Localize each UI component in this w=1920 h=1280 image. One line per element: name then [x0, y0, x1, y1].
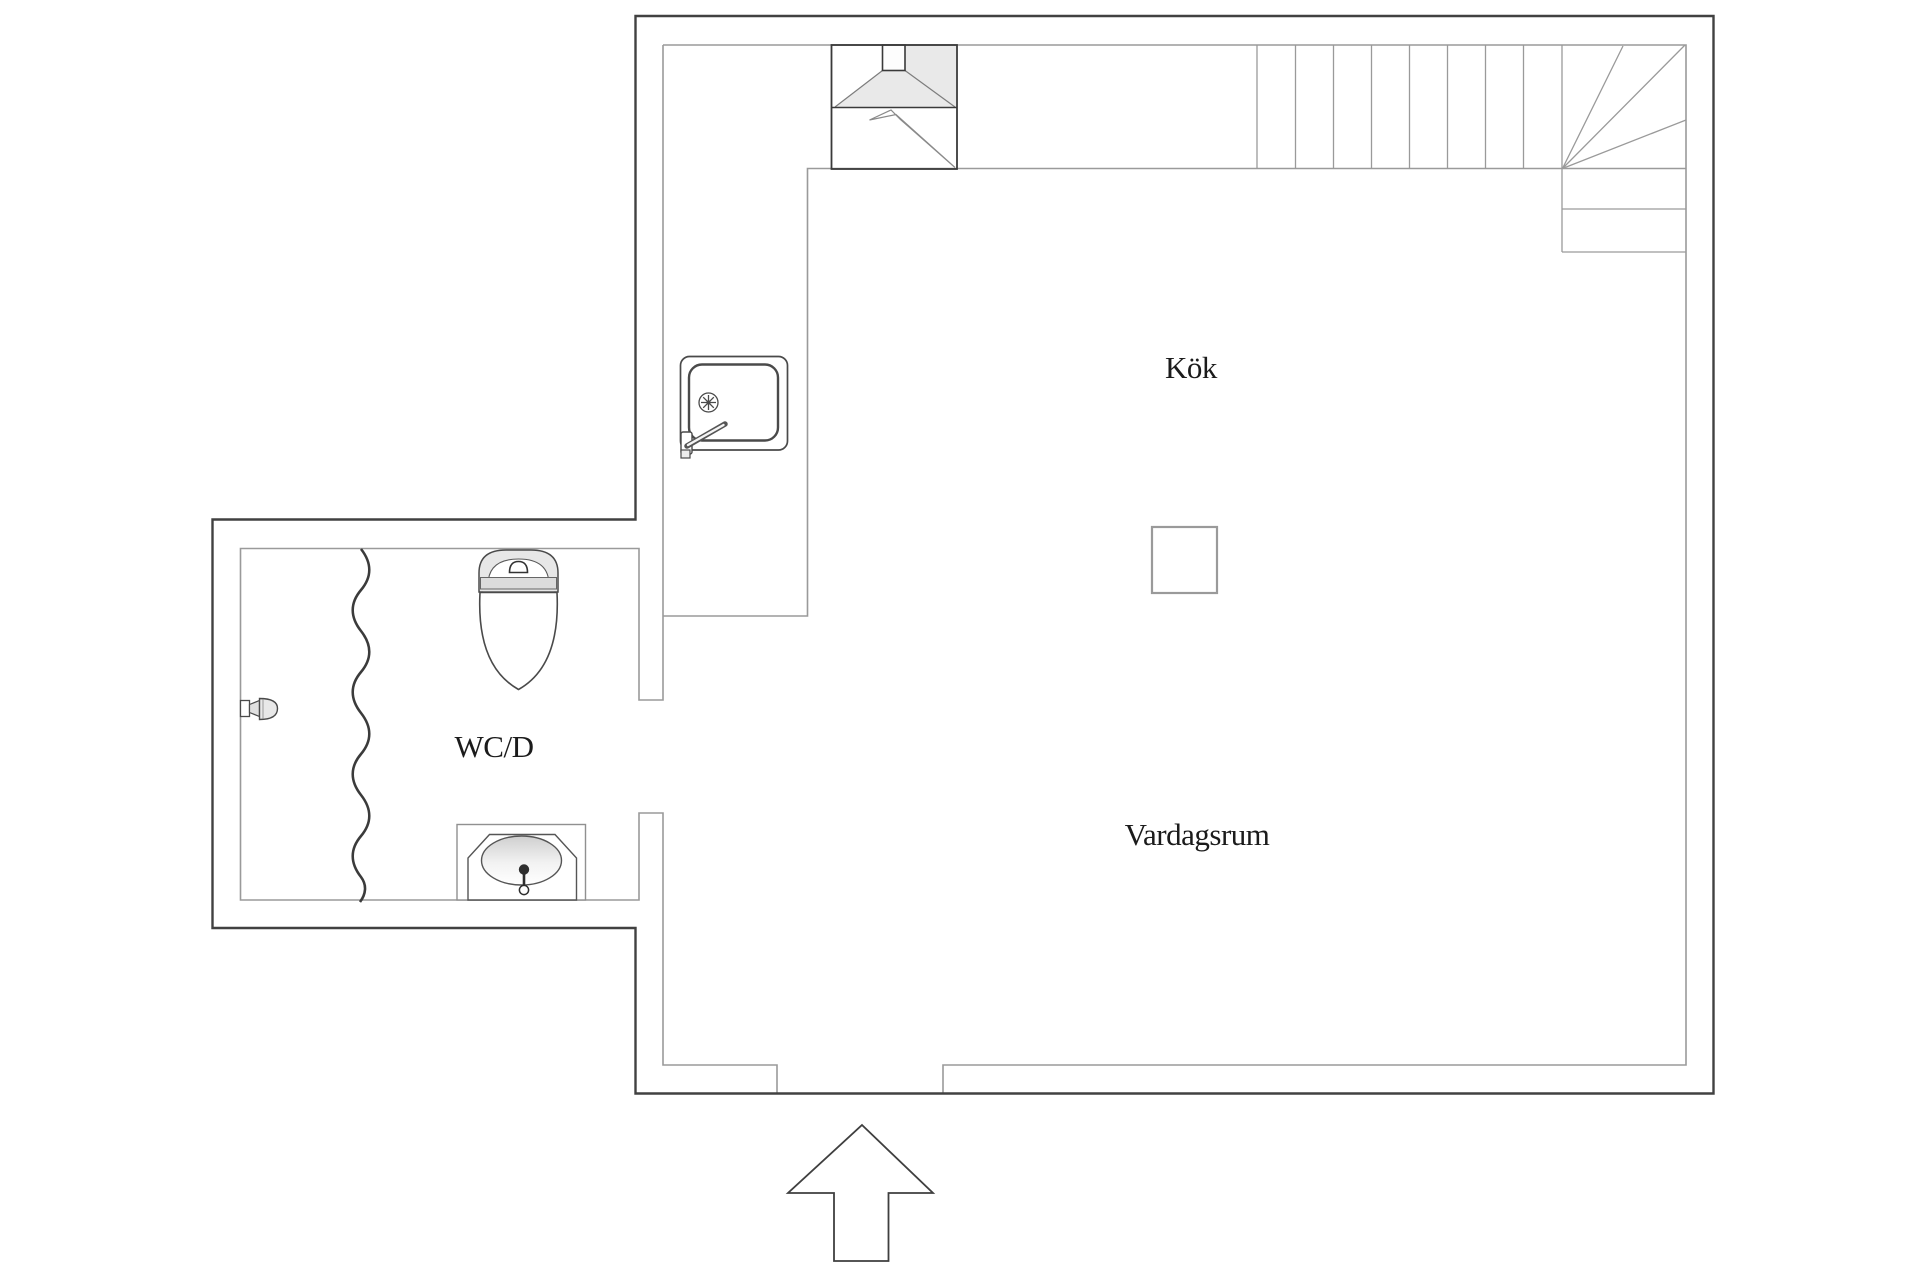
shower-knob	[260, 699, 278, 720]
inner-wall-lines	[241, 45, 1687, 1093]
shower-neck	[250, 701, 260, 717]
toilet-bowl	[480, 593, 558, 690]
sink-rim	[681, 357, 788, 451]
chimney-pillar-icon	[1152, 527, 1217, 593]
shower-curtain-icon	[353, 549, 370, 902]
room-label-vardagsrum: Vardagsrum	[1125, 817, 1270, 852]
washbasin-bowl	[482, 836, 562, 885]
lightning-stove-icon	[870, 110, 956, 168]
room-label-kok: Kök	[1165, 350, 1218, 385]
cooktop-hood-icon	[832, 45, 958, 169]
toilet-icon	[479, 550, 558, 690]
staircase-with-winder-icon	[1257, 45, 1686, 252]
floor-plan-canvas: Kök Vardagsrum WC/D	[0, 0, 1920, 1280]
shower-head-icon	[241, 699, 278, 720]
toilet-flush-button	[510, 562, 528, 573]
washbasin-icon	[457, 825, 586, 901]
room-label-wcd: WC/D	[455, 729, 534, 764]
toilet-seat-hinge	[481, 578, 557, 590]
hood-chimney	[883, 45, 906, 71]
stair-treads	[1257, 45, 1686, 252]
winder-fan-lines	[1563, 45, 1687, 169]
kitchen-sink-icon	[681, 357, 788, 459]
shower-mount	[241, 701, 250, 717]
basin-faucet-head	[519, 864, 529, 874]
sink-drain	[699, 393, 718, 412]
faucet-foot	[681, 450, 690, 458]
outer-wall	[213, 16, 1714, 1094]
entry-arrow-icon	[788, 1125, 933, 1261]
basin-faucet-knob	[519, 885, 528, 894]
